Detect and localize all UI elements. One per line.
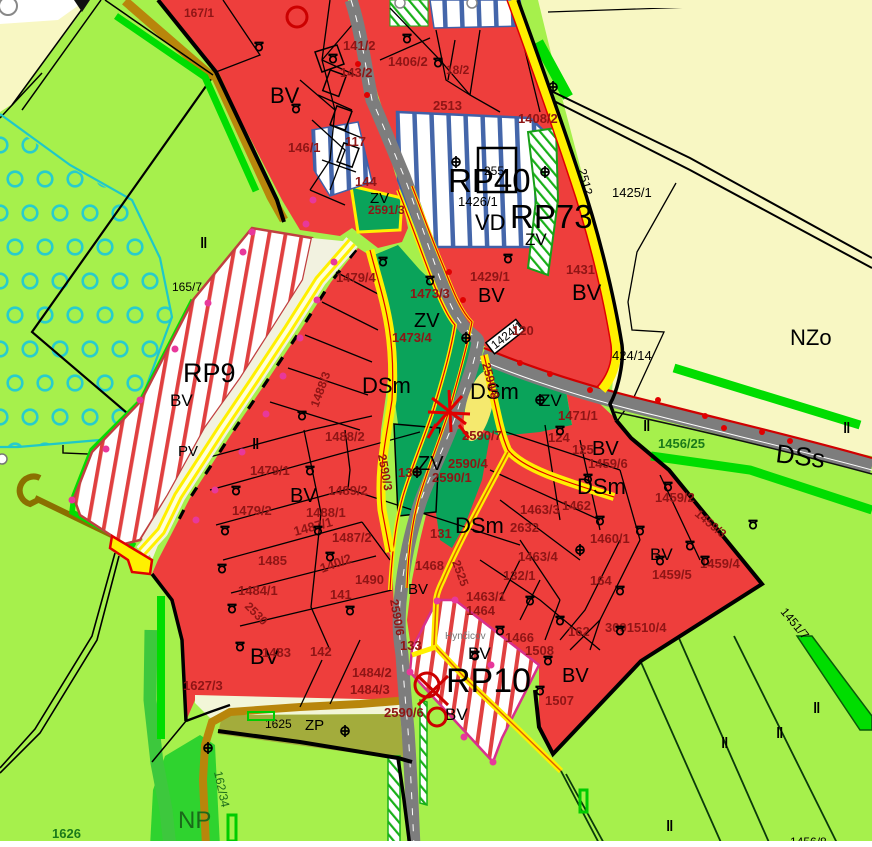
svg-text:2513: 2513	[433, 98, 462, 113]
svg-text:133: 133	[400, 638, 422, 653]
svg-text:1408/2: 1408/2	[518, 111, 558, 126]
svg-text:‖: ‖	[721, 735, 728, 752]
svg-text:1429/1: 1429/1	[470, 269, 510, 284]
svg-text:1426/1: 1426/1	[458, 194, 498, 209]
svg-text:ZV: ZV	[414, 310, 440, 332]
svg-text:2590/1: 2590/1	[432, 470, 472, 485]
svg-text:‖: ‖	[666, 818, 673, 835]
svg-text:424/14: 424/14	[612, 348, 652, 363]
svg-text:NZo: NZo	[790, 325, 832, 350]
svg-text:1490: 1490	[355, 572, 384, 587]
svg-text:1507: 1507	[545, 693, 574, 708]
svg-text:1484/3: 1484/3	[350, 682, 390, 697]
svg-text:1463/1: 1463/1	[466, 589, 506, 604]
svg-text:‖: ‖	[813, 700, 820, 717]
svg-text:1463/4: 1463/4	[518, 549, 559, 564]
svg-text:1406/2: 1406/2	[388, 54, 428, 69]
svg-text:18/2: 18/2	[446, 63, 470, 77]
svg-text:DSs: DSs	[774, 438, 826, 474]
svg-text:ZP: ZP	[305, 717, 324, 734]
svg-text:1459/5: 1459/5	[652, 567, 692, 582]
svg-text:1479/1: 1479/1	[250, 463, 290, 478]
svg-text:1484/2: 1484/2	[352, 665, 392, 680]
svg-text:DSm: DSm	[362, 373, 411, 398]
svg-text:1463/3: 1463/3	[520, 502, 560, 517]
svg-text:BV: BV	[478, 285, 505, 307]
svg-text:1484/1: 1484/1	[238, 583, 278, 598]
svg-text:1471/1: 1471/1	[558, 408, 598, 423]
svg-text:1479/4: 1479/4	[336, 270, 377, 285]
svg-text:143/2: 143/2	[340, 65, 373, 80]
svg-text:1627/3: 1627/3	[183, 678, 223, 693]
svg-text:1473/3: 1473/3	[410, 286, 450, 301]
svg-text:Hynčicov: Hynčicov	[445, 631, 486, 642]
svg-text:RP9: RP9	[183, 358, 236, 388]
svg-text:1483: 1483	[262, 645, 291, 660]
svg-text:1485: 1485	[258, 553, 287, 568]
svg-text:1468: 1468	[415, 558, 444, 573]
svg-text:RP10: RP10	[446, 662, 531, 700]
svg-text:132/1: 132/1	[503, 568, 536, 583]
svg-text:NP: NP	[178, 807, 211, 834]
svg-text:1460/1: 1460/1	[590, 531, 630, 546]
svg-text:‖: ‖	[643, 418, 650, 435]
svg-text:BV: BV	[650, 545, 673, 564]
svg-text:‖: ‖	[776, 725, 783, 742]
svg-text:1464: 1464	[466, 603, 496, 618]
svg-text:117: 117	[345, 134, 366, 149]
svg-text:RP73: RP73	[510, 198, 593, 235]
svg-text:1626: 1626	[52, 826, 81, 841]
svg-text:‖: ‖	[200, 235, 207, 252]
svg-text:1425/1: 1425/1	[612, 185, 652, 200]
svg-text:1479/2: 1479/2	[232, 503, 272, 518]
svg-text:BV: BV	[468, 644, 491, 663]
svg-text:120: 120	[512, 323, 534, 338]
svg-text:1456/25: 1456/25	[658, 436, 705, 451]
svg-text:146/1: 146/1	[288, 140, 321, 155]
svg-text:2590/4: 2590/4	[448, 456, 489, 471]
svg-text:131: 131	[430, 526, 452, 541]
svg-text:BV: BV	[445, 705, 468, 724]
svg-text:1488/2: 1488/2	[325, 429, 365, 444]
svg-text:141: 141	[330, 587, 352, 602]
svg-text:2591/3: 2591/3	[368, 203, 405, 217]
svg-text:162: 162	[568, 624, 590, 639]
svg-text:1487/2: 1487/2	[332, 530, 372, 545]
svg-text:1489/2: 1489/2	[328, 483, 368, 498]
svg-text:2590/6: 2590/6	[384, 705, 424, 720]
svg-text:124: 124	[548, 430, 570, 445]
svg-text:BV: BV	[290, 485, 317, 507]
svg-text:3091510/4: 3091510/4	[605, 620, 667, 635]
svg-text:1462: 1462	[562, 498, 591, 513]
svg-text:2632: 2632	[510, 520, 539, 535]
svg-text:164: 164	[590, 573, 612, 588]
svg-text:BV: BV	[170, 391, 193, 410]
svg-text:BV: BV	[562, 665, 589, 687]
svg-text:‖: ‖	[843, 420, 850, 437]
svg-text:165/7: 165/7	[172, 280, 202, 294]
svg-text:1459/6: 1459/6	[588, 456, 628, 471]
svg-text:1459/2: 1459/2	[655, 490, 695, 505]
svg-text:‖: ‖	[252, 436, 259, 453]
svg-text:1473/4: 1473/4	[392, 330, 433, 345]
svg-text:125: 125	[572, 442, 594, 457]
svg-text:VD: VD	[475, 210, 506, 235]
svg-text:ZV: ZV	[525, 230, 547, 249]
svg-text:PV: PV	[178, 443, 198, 460]
svg-text:BV: BV	[572, 280, 602, 305]
svg-text:144: 144	[355, 174, 377, 189]
svg-text:142: 142	[310, 644, 332, 659]
svg-text:DSm: DSm	[577, 474, 626, 499]
svg-text:DSm: DSm	[455, 513, 504, 538]
svg-text:BV: BV	[408, 581, 428, 598]
svg-text:141/2: 141/2	[343, 38, 376, 53]
svg-text:1431: 1431	[566, 262, 595, 277]
svg-text:167/1: 167/1	[184, 6, 214, 20]
